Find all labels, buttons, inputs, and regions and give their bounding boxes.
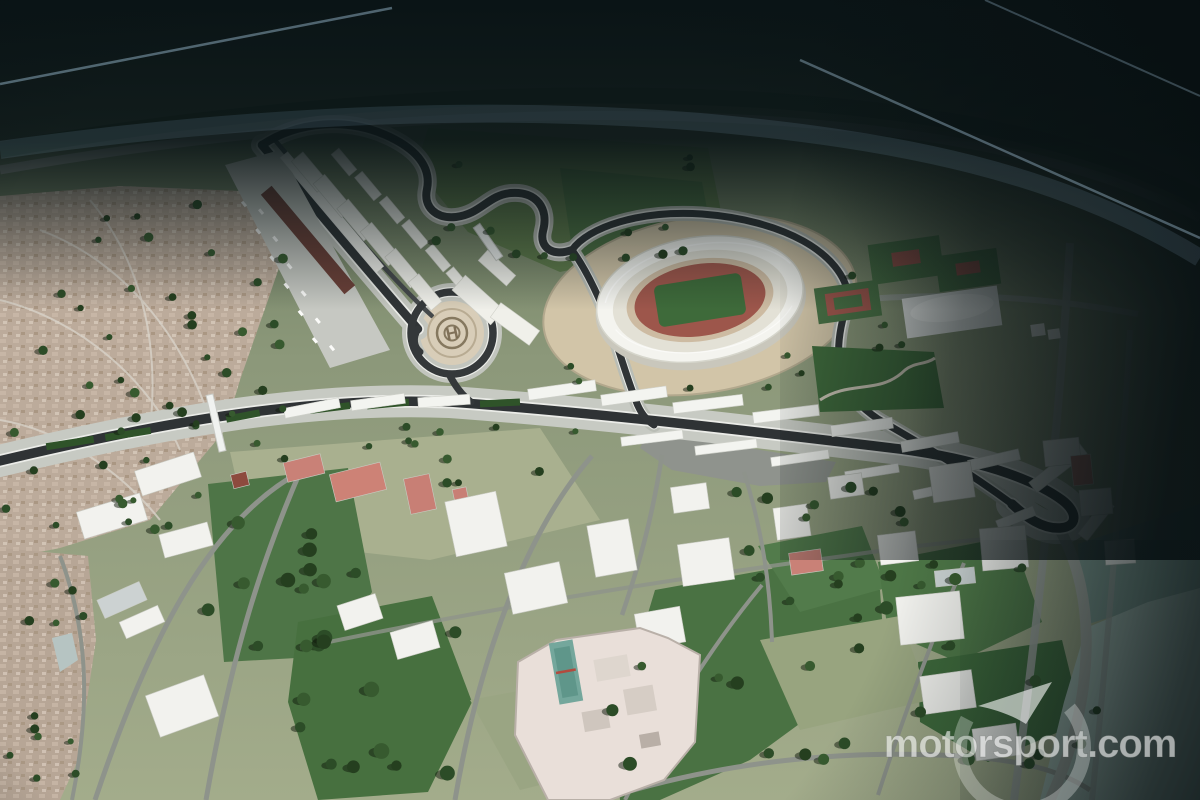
watermark-text: motorsport.com [884, 722, 1177, 766]
circuit-scene: H [0, 0, 1200, 800]
aerial-circuit-render: H [0, 0, 1200, 800]
